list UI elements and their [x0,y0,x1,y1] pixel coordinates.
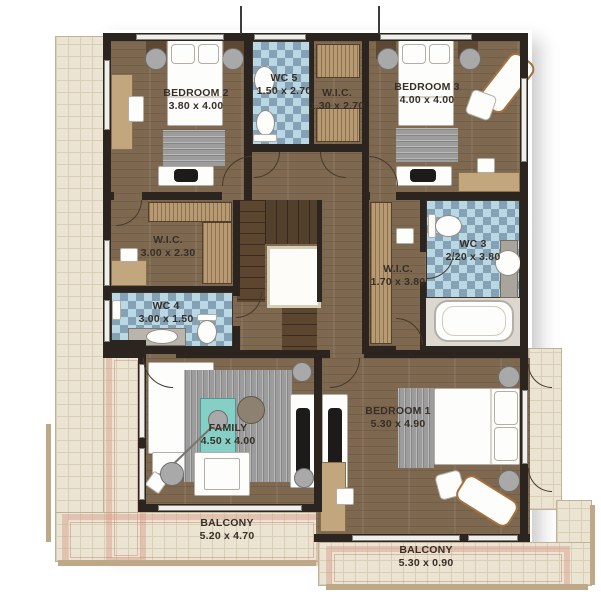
room-label-wic-left: W.I.C. 3.00 x 2.30 [113,234,223,260]
wic-right-bench [396,228,414,244]
room-dims: 4.00 x 4.00 [372,94,482,107]
pillow [402,44,426,64]
tv-bedroom3 [410,169,436,182]
plant-pot [294,468,314,488]
wall [322,350,330,358]
bedside-lamp [222,48,244,70]
room-label-bedroom1: BEDROOM 1 5.30 x 4.90 [343,405,453,431]
wall [233,326,240,352]
balcony-outer-band-bottom-left [58,560,316,566]
desk-chair [477,158,495,173]
toilet-tank-wc5 [253,134,277,142]
pillow [494,427,518,461]
room-label-balcony-left: BALCONY 5.20 x 4.70 [157,517,297,543]
wall [176,350,322,358]
wall [364,350,528,358]
room-name: BALCONY [356,544,496,557]
armchair-cushion [204,458,240,490]
wall [142,192,222,200]
room-label-balcony-bottom: BALCONY 5.30 x 0.90 [356,544,496,570]
toilet-wc3 [435,215,462,237]
stairs-top-flight [265,200,317,244]
toilet-wc5 [256,110,275,136]
tv-bedroom2 [174,169,198,182]
floor-lamp-shade [160,462,184,486]
desk-bedroom3 [458,172,520,192]
bathtub-inner [442,306,506,336]
window [139,448,145,500]
rug-bedroom3 [396,128,458,162]
wic-left-closet-horizontal [148,202,232,222]
room-label-family: FAMILY 4.50 x 4.00 [173,422,283,448]
balcony-left-strip [55,36,105,562]
wall [103,192,114,200]
room-name: BEDROOM 3 [372,81,482,94]
duvet-fold [490,389,492,464]
wall [314,358,322,512]
pillow [429,44,450,64]
room-label-wc3: WC 3 2.20 x 3.80 [418,238,528,264]
pillow [198,44,219,64]
room-dims: 2.20 x 3.80 [418,251,528,264]
ottoman-family [237,396,265,424]
room-name: WC 4 [111,300,221,313]
room-label-bedroom2: BEDROOM 2 3.80 x 4.00 [141,87,251,113]
room-name: BEDROOM 1 [343,405,453,418]
window [521,78,527,162]
bedside-lamp [498,366,520,388]
balcony-outer-band-left [46,424,51,542]
room-dims: 3.00 x 2.30 [113,247,223,260]
stairs-left-flight [237,200,265,302]
cabinet-front [296,408,310,474]
balcony-outer-band-bottom-right [326,584,588,590]
bedside-lamp [145,48,167,70]
wall [244,144,369,152]
bedside-lamp [498,470,520,492]
sliding-door-family [158,505,302,511]
room-dims: 3.80 x 4.00 [141,100,251,113]
balcony-right-wrap [556,500,592,546]
pillow [171,44,195,64]
room-dims: 5.20 x 4.70 [157,530,297,543]
window [104,240,110,286]
room-name: W.I.C. [113,234,223,247]
wall [103,350,142,358]
plant-pot [292,362,312,382]
wall [111,286,233,292]
window [139,364,145,438]
room-name: BEDROOM 2 [141,87,251,100]
wall [317,200,322,302]
window [522,390,528,464]
wic-top-closet-lower [316,108,360,142]
wall [362,192,370,200]
bedside-lamp [459,48,481,70]
room-dims: 1.30 x 2.70 [299,100,375,113]
window [254,34,306,40]
room-dims: 1.70 x 3.80 [343,276,453,289]
room-dims: 5.30 x 4.90 [343,418,453,431]
room-name: WC 3 [418,238,528,251]
wall [396,192,528,200]
window [104,60,110,130]
room-name: WC 5 [246,72,322,85]
rug-bedroom2 [163,130,225,166]
chair-bedroom1 [336,488,354,505]
room-dims: 5.30 x 0.90 [356,557,496,570]
room-label-wic-top: W.I.C. 1.30 x 2.70 [299,87,375,113]
wic-top-closet-upper [316,44,360,78]
balcony-outer-band-right [590,505,595,585]
vent-mark [378,6,380,34]
window [104,300,110,342]
stair-well-opening [267,246,321,308]
room-name: BALCONY [157,517,297,530]
wall [233,200,240,296]
desk-wic-left [111,260,147,286]
pillow [494,391,518,425]
vent-mark [240,6,242,34]
room-dims: 4.50 x 4.00 [173,435,283,448]
window [380,34,472,40]
sliding-door-bedroom1 [352,535,460,541]
floor-plan: BEDROOM 2 3.80 x 4.00 WC 5 1.50 x 2.70 W… [0,0,601,601]
room-name: FAMILY [173,422,283,435]
window [136,34,224,40]
bedside-lamp [377,48,399,70]
window [468,535,518,541]
sink-wc4 [146,329,178,344]
room-name: W.I.C. [299,87,375,100]
room-dims: 3.00 x 1.50 [111,313,221,326]
room-label-wic-right: W.I.C. 1.70 x 3.80 [343,263,453,289]
room-label-bedroom3: BEDROOM 3 4.00 x 4.00 [372,81,482,107]
room-name: W.I.C. [343,263,453,276]
room-label-wc4: WC 4 3.00 x 1.50 [111,300,221,326]
